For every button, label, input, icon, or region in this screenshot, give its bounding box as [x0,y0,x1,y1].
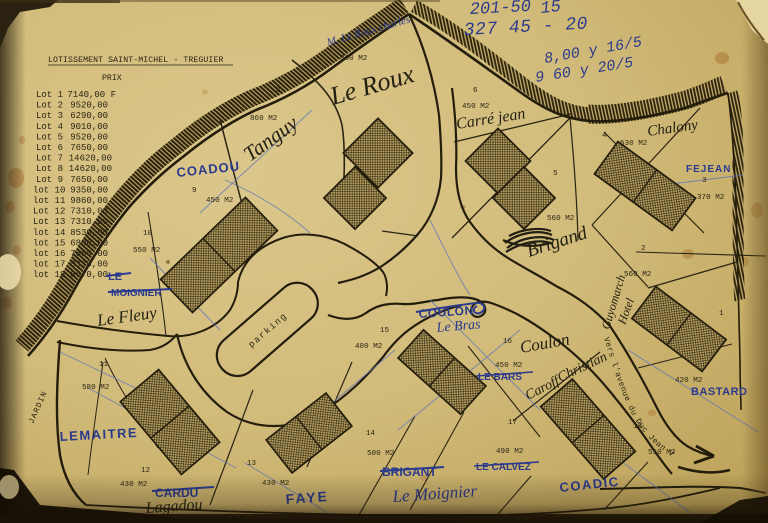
svg-text:7650,00: 7650,00 [70,249,108,259]
svg-text:8670,00: 8670,00 [70,270,108,280]
svg-text:15: 15 [380,327,390,335]
svg-text:580 M2: 580 M2 [82,384,110,392]
svg-text:LOTISSEMENT SAINT-MICHEL - T: LOTISSEMENT SAINT-MICHEL - TREGUIER [48,56,223,65]
svg-text:9520,00: 9520,00 [70,101,108,111]
svg-text:450 M2: 450 M2 [495,362,523,370]
svg-text:420 M2: 420 M2 [675,377,703,385]
svg-text:9860,00: 9860,00 [70,196,108,206]
svg-text:400 M2: 400 M2 [355,343,383,351]
svg-text:Lot 9: Lot 9 [36,175,63,185]
svg-text:lot 10: lot 10 [33,185,65,195]
svg-text:530 M2: 530 M2 [620,140,648,148]
svg-text:3: 3 [702,177,707,185]
svg-text:PRIX: PRIX [102,74,122,83]
svg-text:9: 9 [192,187,197,195]
svg-text:9520,00: 9520,00 [70,132,108,142]
svg-text:17: 17 [508,419,517,427]
svg-text:lot 16: lot 16 [33,249,65,259]
svg-text:1: 1 [719,310,724,318]
svg-text:13: 13 [247,460,257,468]
svg-text:450 M2: 450 M2 [206,197,234,205]
svg-text:860 M2: 860 M2 [340,55,368,63]
svg-text:560 M2: 560 M2 [624,271,652,279]
svg-text:7310,00: 7310,00 [70,217,108,227]
svg-text:lot 14: lot 14 [33,228,65,238]
svg-text:lot 11: lot 11 [33,196,65,206]
svg-text:Lot 3: Lot 3 [36,111,63,121]
svg-text:14620,00: 14620,00 [69,154,112,164]
svg-text:lot 15: lot 15 [33,238,65,248]
svg-text:14620,00: 14620,00 [69,164,112,174]
svg-text:8530,00: 8530,00 [70,228,108,238]
svg-text:7140,00 F: 7140,00 F [67,90,116,100]
svg-text:LE: LE [108,271,122,283]
svg-text:7310,00: 7310,00 [70,207,108,217]
svg-text:7650,00: 7650,00 [70,175,108,185]
svg-text:9350,00: 9350,00 [70,185,108,195]
svg-text:BASTARD: BASTARD [691,386,747,398]
svg-text:Lot 4: Lot 4 [36,122,63,132]
svg-text:490 M2: 490 M2 [496,448,524,456]
svg-text:Lot 6: Lot 6 [36,143,63,153]
svg-text:Lot 12: Lot 12 [33,207,65,217]
svg-text:7650,00: 7650,00 [70,143,108,153]
svg-text:lot 18: lot 18 [33,270,65,280]
svg-text:8330,00: 8330,00 [70,260,108,270]
svg-text:Lot 8: Lot 8 [36,164,63,174]
svg-text:4: 4 [602,132,607,140]
svg-text:6800,00: 6800,00 [70,238,108,248]
svg-text:6290,00: 6290,00 [70,111,108,121]
svg-text:14: 14 [366,430,376,438]
svg-text:2: 2 [641,245,646,253]
svg-text:5: 5 [553,170,558,178]
svg-text:12: 12 [141,467,151,475]
svg-text:Lot 1: Lot 1 [36,90,63,100]
svg-text:Lot 13: Lot 13 [33,217,65,227]
svg-text:Lot 5: Lot 5 [36,132,63,142]
svg-text:lot 17: lot 17 [33,260,65,270]
svg-text:10: 10 [143,230,153,238]
svg-text:16: 16 [503,338,513,346]
svg-text:9010,00: 9010,00 [70,122,108,132]
svg-text:Lot 7: Lot 7 [36,154,63,164]
svg-text:FEJEAN: FEJEAN [686,164,731,175]
svg-text:11: 11 [99,361,109,369]
svg-text:370 M2: 370 M2 [697,194,725,202]
svg-text:500 M2: 500 M2 [367,450,395,458]
svg-text:8: 8 [276,87,281,95]
svg-text:560 M2: 560 M2 [547,215,575,223]
svg-text:550 M2: 550 M2 [133,247,161,255]
svg-text:Lot 2: Lot 2 [36,101,63,111]
svg-text:6: 6 [473,87,478,95]
svg-text:450 M2: 450 M2 [462,103,490,111]
